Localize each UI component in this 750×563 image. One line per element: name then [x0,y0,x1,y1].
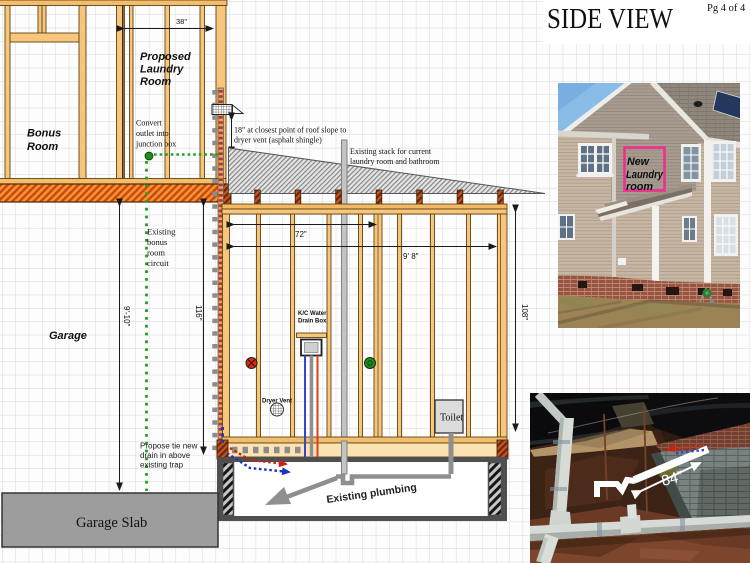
svg-text:108": 108" [520,304,529,320]
svg-text:circuit: circuit [147,258,169,268]
svg-text:room: room [147,248,165,258]
svg-text:Proposed: Proposed [140,51,191,63]
svg-text:Garage: Garage [49,330,87,342]
svg-text:72": 72" [295,230,307,239]
svg-text:9'-10": 9'-10" [122,306,131,327]
svg-text:18" at closest point of roof s: 18" at closest point of roof slope to [234,126,346,135]
svg-text:116": 116" [194,305,203,321]
svg-text:Toilet: Toilet [440,413,463,424]
svg-text:Laundry: Laundry [626,169,664,181]
svg-text:Pg 4 of 4: Pg 4 of 4 [707,3,746,14]
svg-text:room: room [626,181,653,193]
svg-text:Propose tie new: Propose tie new [140,442,198,451]
svg-text:Laundry: Laundry [140,64,184,76]
svg-text:laundry room and bathroom: laundry room and bathroom [350,157,440,166]
svg-text:Existing: Existing [147,227,176,237]
svg-text:existing trap: existing trap [140,461,184,470]
svg-text:Bonus: Bonus [27,128,61,140]
svg-text:Drain Box: Drain Box [298,319,327,325]
svg-text:9' 8": 9' 8" [403,252,419,261]
svg-text:outlet into: outlet into [136,129,169,138]
svg-text:38": 38" [176,17,187,26]
svg-text:Room: Room [140,76,171,88]
svg-text:SIDE VIEW: SIDE VIEW [547,3,674,35]
svg-text:drain in above: drain in above [140,451,191,460]
svg-text:junction box: junction box [135,140,176,149]
svg-text:Existing stack for current: Existing stack for current [350,147,432,156]
svg-text:Convert: Convert [136,119,163,128]
svg-text:New: New [627,156,650,168]
svg-text:dryer vent (asphalt shingle): dryer vent (asphalt shingle) [234,136,322,145]
svg-text:K/C Water: K/C Water [298,311,327,317]
svg-text:bonus: bonus [147,237,167,247]
svg-text:Garage Slab: Garage Slab [76,515,147,531]
svg-text:Room: Room [27,141,58,153]
